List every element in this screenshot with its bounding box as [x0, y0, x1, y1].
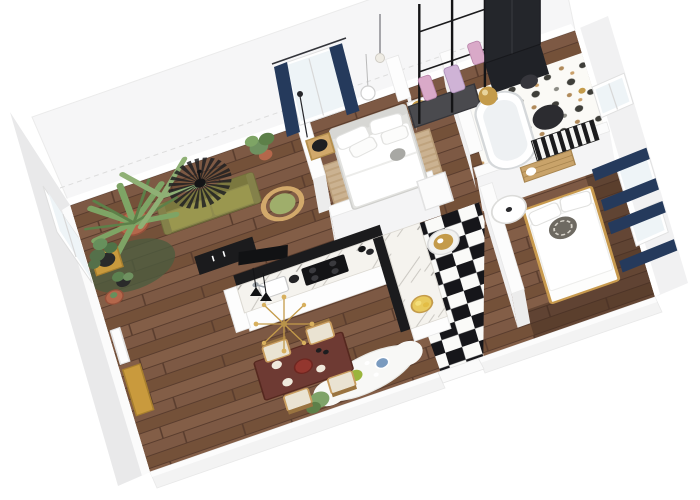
- apartment-3d-floor-plan: [0, 0, 700, 500]
- floor-lamp-shade: [297, 91, 303, 97]
- pendant-bulb: [376, 54, 385, 63]
- floor-plan-svg: [0, 0, 700, 500]
- brass-sputnik-chandelier: [254, 295, 315, 354]
- brass-sphere-lantern: [479, 87, 498, 106]
